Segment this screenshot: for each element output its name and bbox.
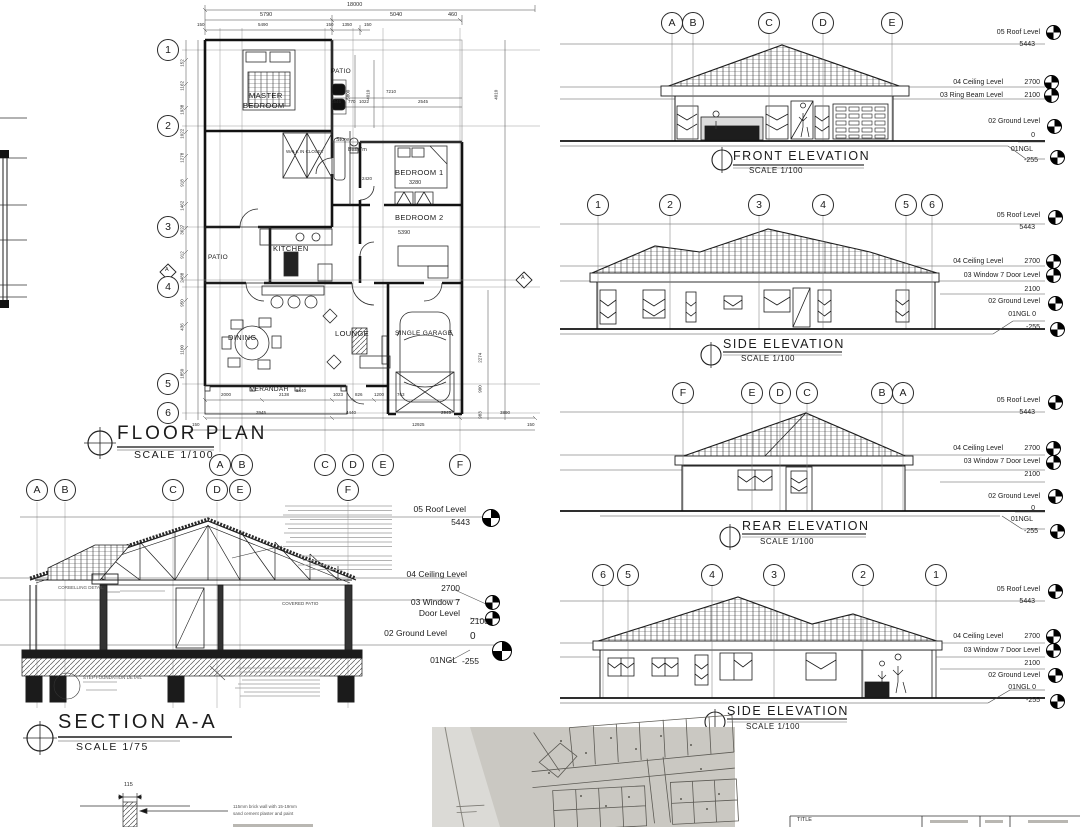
dim-label: 3627 [180, 225, 185, 235]
grid-bubble: B [871, 382, 893, 404]
dim-label: 3945 [256, 411, 266, 416]
level-value: 2100 [883, 471, 1040, 478]
datum-icon [1050, 694, 1065, 709]
annotation-foundation: STEP FOUNDATION DETAIL [83, 676, 142, 681]
level-label: 01NGL 0 [883, 684, 1036, 691]
level-value: -255 [883, 697, 1040, 704]
elevation-scale: SCALE 1/100 [760, 538, 814, 546]
grid-bubble: C [162, 479, 184, 501]
grid-bubble: 4 [157, 276, 179, 298]
grid-bubble: 2 [659, 194, 681, 216]
grid-bubble: 3 [157, 216, 179, 238]
detail-note-1: 115mm brick wall with 15-19mm [233, 805, 297, 810]
dim-label: 1022 [180, 129, 185, 139]
dim-label: 12925 [412, 423, 425, 428]
elevation-title: REAR ELEVATION [742, 520, 870, 533]
grid-bubble: C [758, 12, 780, 34]
level-value: -255 [883, 324, 1040, 331]
dim-label: 912 [180, 251, 185, 259]
dim-label: 1462 [180, 201, 185, 211]
dim-label: 1278 [180, 153, 185, 163]
level-label: 03 Window 7 [300, 598, 460, 607]
dim-label: 1850 [180, 369, 185, 379]
room-label-lounge: LOUNGE [335, 330, 369, 338]
datum-icon [1046, 441, 1061, 456]
datum-icon [1046, 25, 1061, 40]
dim-label: 2138 [279, 393, 289, 398]
level-label: 02 Ground Level [883, 493, 1040, 500]
datum-icon [485, 611, 500, 626]
grid-bubble: 1 [157, 39, 179, 61]
dim-label: 900 [478, 385, 483, 393]
grid-bubble: 6 [921, 194, 943, 216]
datum-icon [1044, 88, 1059, 103]
dim-label: 8440 [296, 389, 306, 394]
dim-label: 150 [197, 23, 205, 28]
wall-detail [80, 793, 228, 827]
grid-bubble: 1 [587, 194, 609, 216]
grid-bubble: 3 [748, 194, 770, 216]
grid-bubble: 5 [617, 564, 639, 586]
title-block-smudge [985, 820, 1003, 823]
dim-label: 983 [478, 411, 483, 419]
dim-label: 4010 [494, 90, 499, 100]
drawing-sheet: 1 2 3 4 5 6 A B C D E F A B C D E F A B … [0, 0, 1080, 827]
grid-bubble: E [881, 12, 903, 34]
dim-label: 918 [180, 179, 185, 187]
dim-label: 7210 [386, 90, 396, 95]
datum-icon [1048, 668, 1063, 683]
grid-bubble: E [372, 454, 394, 476]
level-label: 02 Ground Level [883, 118, 1040, 125]
grid-bubble: F [672, 382, 694, 404]
datum-icon [1046, 455, 1061, 470]
level-label: 01NGL [883, 516, 1033, 523]
dim-label: 2945 [441, 411, 451, 416]
level-label: 04 Ceiling Level [843, 79, 1003, 86]
room-label-store: Store [336, 138, 349, 144]
dim-label: 5040 [390, 13, 402, 19]
level-value: 2100 [883, 660, 1040, 667]
dim-label: 826 [355, 393, 363, 398]
section-cut-label: A [165, 268, 169, 274]
dim-label: 3280 [409, 181, 421, 187]
elevation-title: SIDE ELEVATION [723, 338, 845, 351]
annotation-covered-patio: COVERED PATIO [282, 602, 318, 607]
grid-bubble: B [682, 12, 704, 34]
datum-icon [492, 641, 512, 661]
datum-icon [1048, 296, 1063, 311]
dim-label: 770 [348, 100, 356, 105]
dim-label: 4440 [346, 411, 356, 416]
datum-icon [1046, 268, 1061, 283]
dim-label: 150 [326, 23, 334, 28]
datum-icon [1046, 643, 1061, 658]
level-value: 2700 [1008, 633, 1040, 640]
dim-label: 5490 [258, 23, 268, 28]
dim-label: 5790 [260, 13, 272, 19]
grid-bubble: C [314, 454, 336, 476]
level-label: 03 Window 7 Door Level [883, 272, 1040, 279]
level-label: Door Level [300, 609, 460, 618]
datum-icon [1050, 150, 1065, 165]
level-label: 02 Ground Level [883, 672, 1040, 679]
annotation-corbelling: CORBELLING DETAIL [58, 586, 104, 591]
section-title: SECTION A-A [58, 712, 218, 733]
datum-icon [1046, 254, 1061, 269]
level-label: 03 Window 7 Door Level [883, 458, 1040, 465]
dim-label: 460 [448, 13, 457, 19]
section-cut-label: A [521, 276, 525, 282]
site-plan-photo [432, 714, 739, 827]
grid-bubble: D [342, 454, 364, 476]
dim-label: 150 [364, 23, 372, 28]
level-value: 2100 [1008, 92, 1040, 99]
dim-label: 950 [180, 299, 185, 307]
room-label-patio-left: PATIO [208, 255, 228, 262]
elevation-title: SIDE ELEVATION [727, 705, 849, 718]
level-label: 03 Window 7 Door Level [883, 647, 1040, 654]
level-label: 03 Ring Beam Level [843, 92, 1003, 99]
grid-bubble: 5 [895, 194, 917, 216]
grid-bubble: F [449, 454, 471, 476]
level-value: 2100 [883, 286, 1040, 293]
dim-label: 763 [397, 393, 405, 398]
dim-label: 1162 [180, 81, 185, 91]
detail-note-2: sand cement plaster and paint [233, 812, 293, 817]
level-value: 2700 [1008, 258, 1040, 265]
level-value: 2700 [1008, 79, 1040, 86]
elevation-scale: SCALE 1/100 [746, 723, 800, 731]
datum-icon [482, 509, 500, 527]
dim-label: 150 [192, 423, 200, 428]
elevation-scale: SCALE 1/100 [749, 167, 803, 175]
grid-bubble: 4 [812, 194, 834, 216]
dim-label: 2274 [478, 353, 483, 363]
level-value: 2700 [300, 584, 460, 593]
grid-bubble: 2 [852, 564, 874, 586]
grid-bubble: A [26, 479, 48, 501]
room-label-bedroom1: BEDROOM 1 [395, 169, 444, 177]
level-value: 5443 [883, 409, 1035, 416]
room-label-bedroom2: BEDROOM 2 [395, 214, 444, 222]
room-label-patio-top: PATIO [331, 69, 351, 76]
room-label-garage: SINGLE GARAGE [395, 331, 452, 338]
grid-bubble: 6 [157, 402, 179, 424]
grid-bubble: A [892, 382, 914, 404]
level-label: 01NGL 0 [883, 311, 1036, 318]
room-label-master-1: MASTER [249, 92, 283, 100]
level-label: 02 Ground Level [883, 298, 1040, 305]
level-label: 04 Ceiling Level [843, 445, 1003, 452]
room-label-master-2: BEDROOM [243, 102, 285, 110]
datum-icon [1048, 210, 1063, 225]
dim-label: 1100 [180, 345, 185, 355]
dim-label: 2545 [418, 100, 428, 105]
level-value: -255 [883, 528, 1038, 535]
grid-bubble: 1 [925, 564, 947, 586]
level-label: 01NGL [297, 656, 457, 665]
dim-label: 2488 [180, 273, 185, 283]
grid-bubble: 3 [763, 564, 785, 586]
level-label: 05 Roof Level [883, 29, 1040, 36]
datum-icon [1048, 489, 1063, 504]
dim-label: 1022 [359, 100, 369, 105]
grid-bubble: E [741, 382, 763, 404]
level-value: 0 [883, 505, 1035, 512]
level-label: 01NGL [883, 146, 1033, 153]
dim-label: 1200 [374, 393, 384, 398]
datum-icon [1050, 322, 1065, 337]
dim-label: 2420 [362, 177, 372, 182]
level-value: -255 [883, 157, 1038, 164]
dim-label: 1545 [331, 100, 341, 105]
level-value: 5443 [310, 518, 470, 527]
datum-icon [485, 595, 500, 610]
dim-label: 436 [180, 323, 185, 331]
level-value: 5443 [883, 41, 1035, 48]
grid-bubble: B [231, 454, 253, 476]
datum-icon [1048, 584, 1063, 599]
dim-label: 18000 [347, 3, 362, 9]
room-label-dining: DINING [228, 334, 257, 342]
dim-label: 115 [124, 783, 133, 789]
grid-bubble: B [54, 479, 76, 501]
dim-label: 152 [180, 59, 185, 67]
grid-bubble: 4 [701, 564, 723, 586]
level-value: 5443 [883, 598, 1035, 605]
grid-bubble: F [337, 479, 359, 501]
level-label: 05 Roof Level [883, 586, 1040, 593]
left-edge-fragment [0, 118, 27, 308]
dim-label: 1023 [333, 393, 343, 398]
dim-label: 1350 [342, 23, 352, 28]
level-label: 04 Ceiling Level [843, 633, 1003, 640]
dim-label: 150 [527, 423, 535, 428]
datum-icon [1046, 629, 1061, 644]
level-label: 04 Ceiling Level [843, 258, 1003, 265]
section-scale: SCALE 1/75 [76, 742, 149, 753]
grid-bubble: C [796, 382, 818, 404]
grid-bubble: A [209, 454, 231, 476]
level-value: 0 [883, 132, 1035, 139]
grid-bubble: 2 [157, 115, 179, 137]
room-label-bathroom: Bathr'm [348, 148, 367, 154]
datum-icon [1050, 524, 1065, 539]
level-value: 5443 [883, 224, 1035, 231]
elevation-title: FRONT ELEVATION [733, 150, 870, 163]
grid-bubble: D [812, 12, 834, 34]
title-block-smudge [1028, 820, 1068, 823]
level-value: -255 [462, 657, 479, 666]
grid-bubble: 5 [157, 373, 179, 395]
level-value: 2700 [1008, 445, 1040, 452]
level-value: 0 [470, 632, 476, 643]
grid-bubble: A [661, 12, 683, 34]
datum-icon [1048, 395, 1063, 410]
dim-label: 3890 [500, 411, 510, 416]
room-label-kitchen: KITCHEN [273, 245, 309, 253]
dim-label: 4010 [366, 90, 371, 100]
level-label: 02 Ground Level [287, 629, 447, 638]
grid-bubble: 6 [592, 564, 614, 586]
title-block-label: TITLE [797, 818, 812, 824]
dim-label: 5390 [398, 231, 410, 237]
dim-label: 5800 [346, 90, 351, 100]
grid-bubble: D [769, 382, 791, 404]
dim-label: 1938 [180, 105, 185, 115]
elevation-scale: SCALE 1/100 [741, 355, 795, 363]
grid-bubble: D [206, 479, 228, 501]
dim-label: 2000 [221, 393, 231, 398]
grid-bubble: E [229, 479, 251, 501]
datum-icon [1047, 119, 1062, 134]
title-block-smudge [930, 820, 968, 823]
level-label: 05 Roof Level [306, 505, 466, 514]
room-label-closet: WALK IN CLOSET [286, 150, 324, 155]
floor-plan-scale: SCALE 1/100 [134, 450, 214, 461]
level-label: 04 Ceiling Level [307, 570, 467, 579]
section-cut-markers [160, 264, 532, 288]
